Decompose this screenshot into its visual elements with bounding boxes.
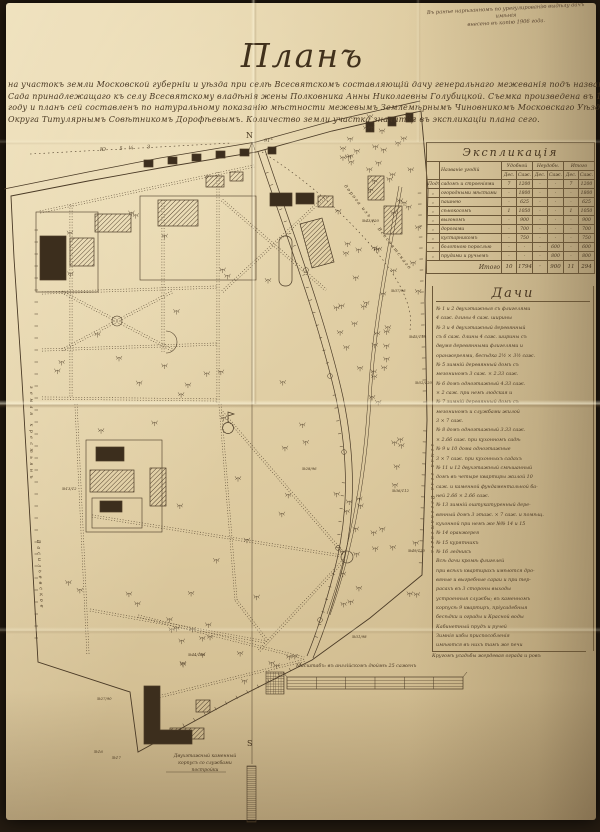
expl-value: · bbox=[533, 225, 548, 234]
tree-symbol bbox=[340, 146, 346, 151]
tree-symbol bbox=[224, 274, 230, 279]
park-alley bbox=[40, 165, 254, 211]
expl-value: 7 bbox=[564, 180, 579, 189]
expl-pre: „ bbox=[427, 207, 440, 216]
left-point-label: №13/12 bbox=[61, 486, 77, 491]
tree-symbol bbox=[59, 360, 65, 365]
expl-row: „прудами и ручьемъ···800·800 bbox=[427, 252, 595, 261]
tree-symbol bbox=[235, 476, 241, 481]
boundary-tick bbox=[279, 209, 282, 210]
tree-symbol bbox=[356, 248, 362, 253]
tree-symbol bbox=[348, 600, 354, 605]
park-alley bbox=[42, 288, 218, 294]
tree-symbol bbox=[384, 357, 390, 362]
expl-value: 1800 bbox=[517, 189, 533, 198]
boundary-tick bbox=[293, 245, 296, 246]
tree-symbol bbox=[213, 558, 219, 563]
buildings-register-line: Всѣ дачи кромѣ флигелей bbox=[436, 557, 590, 566]
expl-value: 700 bbox=[517, 225, 533, 234]
buildings-register-line: № 1 и 2 двухэтажныя съ флигелями bbox=[436, 305, 590, 314]
wooden-building bbox=[230, 172, 243, 181]
stone-building-caption-2: корпусъ со службами bbox=[178, 759, 232, 766]
tree-symbol bbox=[178, 392, 184, 397]
stream bbox=[327, 186, 399, 614]
tree-symbol bbox=[391, 268, 397, 273]
buildings-register-line: 3 × 7 саж. при кухонныхъ садахъ bbox=[436, 455, 590, 464]
scale-block bbox=[266, 672, 284, 694]
tree-symbol bbox=[116, 356, 122, 361]
expl-land-name: садомъ и строеніями bbox=[440, 180, 502, 189]
tree-symbol bbox=[54, 369, 60, 374]
tree-symbol bbox=[390, 545, 396, 550]
description-line: Округа Титулярнымъ Совѣтникомъ Дорофѣевы… bbox=[8, 114, 594, 126]
park-alley bbox=[92, 515, 342, 555]
buildings-register-line: имѣются въ нихъ тамъ же печи bbox=[436, 641, 590, 650]
tree-symbol bbox=[68, 272, 74, 277]
plan-description: на участокъ земли Московской губерніи и … bbox=[8, 79, 594, 125]
tree-symbol bbox=[381, 148, 387, 153]
expl-value: · bbox=[502, 243, 517, 252]
expl-value: · bbox=[564, 198, 579, 207]
tree-symbol bbox=[372, 144, 378, 149]
tree-symbol bbox=[366, 167, 372, 172]
expl-row: „кустарникомъ·750···750 bbox=[427, 234, 595, 243]
tree-symbol bbox=[398, 443, 404, 448]
tree-symbol bbox=[372, 546, 378, 551]
tree-symbol bbox=[381, 365, 387, 370]
tree-symbol bbox=[254, 595, 260, 600]
tree-symbol bbox=[415, 289, 421, 294]
tree-symbol bbox=[199, 636, 205, 641]
expl-value: · bbox=[533, 252, 548, 261]
expl-value: · bbox=[548, 207, 564, 216]
expl-value: · bbox=[502, 234, 517, 243]
park-alley bbox=[61, 293, 171, 351]
tree-symbol bbox=[303, 440, 309, 445]
expl-value: 1 bbox=[564, 207, 579, 216]
buildings-register-line: × 2.66 саж. при кухонномъ садѣ bbox=[436, 436, 590, 445]
expl-value: 1050 bbox=[517, 207, 533, 216]
park-alley bbox=[237, 599, 269, 641]
expl-value: 900 bbox=[517, 216, 533, 225]
stone-building bbox=[96, 447, 124, 461]
tree-symbol bbox=[220, 416, 226, 421]
tree-symbol bbox=[407, 592, 413, 597]
buildings-register-line: устроенныя службы; въ каменномъ bbox=[436, 595, 590, 604]
expl-pre: „ bbox=[427, 252, 440, 261]
tree-symbol bbox=[341, 602, 347, 607]
expl-sub-header: Саж. bbox=[517, 171, 533, 180]
tree-symbol bbox=[406, 205, 412, 210]
wooden-building bbox=[158, 200, 198, 226]
tree-symbol bbox=[286, 655, 292, 660]
expl-pre: „ bbox=[427, 198, 440, 207]
angle-label: 91° bbox=[264, 138, 273, 144]
plan-title: Планъ bbox=[215, 36, 390, 75]
buildings-register-line: № 8 домъ одноэтажный 3.33 саж. bbox=[436, 426, 590, 435]
stone-building-caption-3: постройки bbox=[191, 767, 218, 773]
wooden-building bbox=[318, 196, 333, 207]
park-alley bbox=[92, 517, 342, 557]
expl-value: · bbox=[564, 243, 579, 252]
tree-symbol bbox=[173, 309, 179, 314]
wooden-building bbox=[368, 176, 384, 200]
wooden-building bbox=[196, 700, 210, 712]
expl-value: 625 bbox=[517, 198, 533, 207]
tree-symbol bbox=[354, 149, 360, 154]
tree-symbol bbox=[371, 530, 377, 535]
tree-symbol bbox=[280, 380, 286, 385]
expl-value: 750 bbox=[579, 234, 595, 243]
tree-symbol bbox=[77, 588, 83, 593]
tree-symbol bbox=[384, 329, 390, 334]
tree-symbol bbox=[353, 276, 359, 281]
tree-symbol bbox=[354, 552, 360, 557]
buildings-register-line: расахъ въ 3 стороны выходы bbox=[436, 585, 590, 594]
tree-symbol bbox=[414, 592, 420, 597]
tree-symbol bbox=[376, 247, 382, 252]
survey-point-label: №45/118 bbox=[408, 334, 427, 339]
survey-point-label: №36/112 bbox=[391, 488, 410, 493]
scale-flick bbox=[283, 672, 467, 677]
expl-land-name: болотною порослью bbox=[440, 243, 502, 252]
wooden-building bbox=[206, 176, 224, 187]
tree-symbol bbox=[177, 504, 183, 509]
boundary-tick bbox=[315, 637, 318, 638]
buildings-register-line: № 16 ледникъ bbox=[436, 548, 590, 557]
expl-row: „пашнею·625···625 bbox=[427, 198, 595, 207]
tree-symbol bbox=[133, 213, 139, 218]
tree-symbol bbox=[345, 242, 351, 247]
park-alley bbox=[223, 411, 345, 553]
expl-sub-header: Дес. bbox=[502, 171, 517, 180]
tree-symbol bbox=[361, 304, 367, 309]
survey-point-label: №52/120 bbox=[414, 380, 433, 385]
park-alley bbox=[42, 399, 218, 401]
stone-building bbox=[168, 157, 177, 164]
expl-total-value: · bbox=[533, 261, 548, 274]
buildings-register-line: бесѣдки и ограды и Красной воды bbox=[436, 613, 590, 622]
park-alley bbox=[63, 291, 173, 349]
expl-value: 1800 bbox=[579, 189, 595, 198]
buildings-register-line: № 7 зимній деревянный домъ съ bbox=[436, 398, 590, 407]
tree-symbol bbox=[237, 651, 243, 656]
expl-land-name: дорогами bbox=[440, 225, 502, 234]
buildings-register-line: 3 × 7 саж. bbox=[436, 417, 590, 426]
expl-row: „огородными мѣстами·1800···1800 bbox=[427, 189, 595, 198]
buildings-register-line: домъ въ четыре квартиры жилой 10 bbox=[436, 473, 590, 482]
buildings-register-line: × 2 саж. при немъ людская и bbox=[436, 389, 590, 398]
expl-total-value: 11 bbox=[564, 261, 579, 274]
expl-group-header: Итого bbox=[564, 162, 595, 171]
tree-symbol bbox=[392, 440, 398, 445]
meridian-bar bbox=[247, 766, 256, 822]
expl-value: · bbox=[533, 243, 548, 252]
boundary-label-west-upper: земля крестьянъ bbox=[28, 386, 33, 482]
south-label: S bbox=[247, 739, 252, 748]
tree-symbol bbox=[337, 330, 343, 335]
buildings-register-footnote: Кругомъ усадьбы жердевая ограда и ровъ bbox=[432, 651, 586, 659]
buildings-register-line: саж. и каменной фундаментальной ба- bbox=[436, 483, 590, 492]
tree-symbol bbox=[136, 381, 142, 386]
expl-value: 625 bbox=[579, 198, 595, 207]
expl-value: · bbox=[502, 189, 517, 198]
stone-building bbox=[192, 154, 201, 161]
park-alley bbox=[235, 601, 267, 643]
buildings-register-line: № 15 курятникъ bbox=[436, 539, 590, 548]
wooden-building bbox=[95, 214, 131, 232]
buildings-register-line: Кабинетный прудъ и ручей bbox=[436, 623, 590, 632]
tree-symbol bbox=[244, 538, 250, 543]
wooden-building bbox=[384, 206, 402, 234]
expl-value: · bbox=[533, 189, 548, 198]
expl-sub-header: Саж. bbox=[548, 171, 564, 180]
survey-point-label: №37/96 bbox=[390, 288, 406, 293]
park-alley bbox=[40, 167, 254, 213]
tree-symbol bbox=[274, 663, 280, 668]
tree-symbol bbox=[340, 155, 346, 160]
expl-value: · bbox=[564, 225, 579, 234]
tree-symbol bbox=[299, 423, 305, 428]
expl-land-name: огородными мѣстами bbox=[440, 189, 502, 198]
buildings-register-line: мезониномъ 3 саж. × 2.33 саж. bbox=[436, 370, 590, 379]
tree-symbol bbox=[379, 527, 385, 532]
explication-title: Экспликація bbox=[426, 142, 595, 161]
tree-symbol bbox=[340, 549, 346, 554]
tree-symbol bbox=[161, 364, 167, 369]
expl-sub-header: Дес. bbox=[564, 171, 579, 180]
expl-value: 800 bbox=[579, 252, 595, 261]
buildings-register: Дачи № 1 и 2 двухэтажныя съ флигелями4 с… bbox=[432, 286, 594, 651]
description-line: на участокъ земли Московской губерніи и … bbox=[8, 79, 594, 91]
tree-symbol bbox=[279, 512, 285, 517]
expl-sub-header: Саж. bbox=[579, 171, 595, 180]
buildings-register-line: № 9 и 10 дома одноэтажные bbox=[436, 445, 590, 454]
tree-symbol bbox=[98, 428, 104, 433]
expl-value: 1050 bbox=[579, 207, 595, 216]
tree-symbol bbox=[179, 639, 185, 644]
expl-row: „выгономъ·900···900 bbox=[427, 216, 595, 225]
park-alley bbox=[61, 291, 171, 349]
expl-row: „дорогами·700···700 bbox=[427, 225, 595, 234]
tree-symbol bbox=[204, 371, 210, 376]
expl-land-name: выгономъ bbox=[440, 216, 502, 225]
tree-symbol bbox=[408, 167, 414, 172]
tree-symbol bbox=[380, 292, 386, 297]
expl-value: · bbox=[517, 252, 533, 261]
boundary-tick bbox=[309, 300, 312, 301]
hatched-structure bbox=[300, 218, 334, 268]
tree-symbol bbox=[357, 366, 363, 371]
park-alley bbox=[77, 404, 89, 655]
buildings-register-line: № 11 и 12 двухэтажный смѣшанный bbox=[436, 464, 590, 473]
stone-building bbox=[296, 193, 314, 204]
expl-land-name: пашнею bbox=[440, 198, 502, 207]
survey-point-label: №31/98 bbox=[351, 634, 367, 639]
park-alley bbox=[90, 609, 266, 641]
tree-symbol bbox=[94, 332, 100, 337]
tree-symbol bbox=[375, 400, 381, 405]
stone-building bbox=[270, 193, 292, 206]
scale-caption: Масштабъ: въ англійскомъ дюймѣ 25 саженъ bbox=[296, 664, 476, 669]
expl-total-value: 1794 bbox=[517, 261, 533, 274]
tree-symbol bbox=[383, 344, 389, 349]
tree-symbol bbox=[207, 635, 213, 640]
tree-symbol bbox=[241, 679, 247, 684]
park-alley bbox=[90, 611, 266, 643]
expl-row: „сѣнокосомъ11050··11050 bbox=[427, 207, 595, 216]
expl-pre: „ bbox=[427, 243, 440, 252]
boundary-tick bbox=[266, 172, 269, 173]
expl-value: · bbox=[564, 189, 579, 198]
tree-symbol bbox=[205, 623, 211, 628]
tree-symbol bbox=[292, 654, 298, 659]
tree-symbol bbox=[375, 161, 381, 166]
alley-junction-circle bbox=[112, 316, 122, 326]
boundary-tick bbox=[289, 668, 291, 671]
tree-symbol bbox=[387, 177, 393, 182]
buildings-register-line: вяные и выгребные сараи и при тер- bbox=[436, 576, 590, 585]
description-line: году и планъ сей составленъ по натуральн… bbox=[8, 102, 594, 114]
tree-symbol bbox=[152, 421, 158, 426]
tree-symbol bbox=[334, 492, 340, 497]
wooden-building bbox=[150, 468, 166, 506]
tree-symbol bbox=[218, 370, 224, 375]
expl-total-value: 10 bbox=[502, 261, 517, 274]
expl-value: 750 bbox=[517, 234, 533, 243]
buildings-register-line: кухонной при немъ же №№ 14 и 15 bbox=[436, 520, 590, 529]
garden-pavilion bbox=[223, 423, 234, 434]
tree-symbol bbox=[67, 231, 73, 236]
expl-name-header: Названіе угодій bbox=[440, 162, 502, 180]
tree-symbol bbox=[335, 209, 341, 214]
park-alley bbox=[75, 404, 87, 655]
buildings-register-title: Дачи bbox=[436, 286, 590, 302]
tree-symbol bbox=[126, 592, 132, 597]
tree-symbol bbox=[339, 304, 345, 309]
expl-value: 1200 bbox=[579, 180, 595, 189]
expl-value: 1 bbox=[502, 207, 517, 216]
bearing-label: Ю 5¼ З bbox=[99, 143, 157, 153]
expl-value: · bbox=[502, 216, 517, 225]
tree-symbol bbox=[135, 601, 141, 606]
boundary-tick bbox=[312, 312, 315, 313]
tree-symbol bbox=[65, 580, 71, 585]
expl-value: · bbox=[517, 243, 533, 252]
tree-symbol bbox=[265, 278, 271, 283]
expl-value: 800 bbox=[548, 252, 564, 261]
park-alley bbox=[138, 617, 304, 659]
tree-symbol bbox=[395, 141, 401, 146]
expl-pre: „ bbox=[427, 189, 440, 198]
boundary-tick bbox=[319, 337, 322, 338]
boundary-tick bbox=[322, 611, 325, 612]
tree-symbol bbox=[285, 493, 291, 498]
boundary-tick bbox=[306, 287, 309, 288]
stone-building bbox=[144, 160, 153, 167]
expl-group-header: Неудобн. bbox=[533, 162, 564, 171]
buildings-register-line: корпусѣ 9 квартиръ, пріусадебныя bbox=[436, 604, 590, 613]
boundary-label-west-lower: Васильевское bbox=[35, 539, 45, 611]
buildings-register-line: № 5 зимній деревянный домъ съ bbox=[436, 361, 590, 370]
wooden-building bbox=[90, 470, 134, 492]
stone-building bbox=[268, 147, 276, 154]
north-label: N bbox=[246, 131, 253, 140]
tree-symbol bbox=[185, 383, 191, 388]
tree-symbol bbox=[343, 345, 349, 350]
expl-value: · bbox=[564, 234, 579, 243]
buildings-register-line: съ 6 саж. длины 4 саж. ширины съ bbox=[436, 333, 590, 342]
tree-symbol bbox=[220, 268, 226, 273]
tree-symbol bbox=[394, 464, 400, 469]
park-alley bbox=[42, 397, 218, 399]
buildings-register-line: № 3 и 4 двухэтажный деревянный bbox=[436, 324, 590, 333]
tree-symbol bbox=[347, 137, 353, 142]
buildings-register-line: двумя деревянными флигелями и bbox=[436, 342, 590, 351]
wooden-building bbox=[70, 238, 94, 266]
tree-symbol bbox=[166, 617, 172, 622]
stone-building bbox=[100, 501, 122, 512]
expl-value: · bbox=[564, 216, 579, 225]
survey-point-label: №28/96 bbox=[301, 466, 317, 471]
expl-land-name: прудами и ручьемъ bbox=[440, 252, 502, 261]
expl-value: · bbox=[533, 180, 548, 189]
expl-value: · bbox=[502, 225, 517, 234]
expl-corner bbox=[427, 162, 440, 180]
expl-pre: Подъ bbox=[427, 180, 440, 189]
survey-point-label: №27/90 bbox=[96, 696, 112, 701]
boundary-tick bbox=[302, 275, 305, 276]
tree-symbol bbox=[356, 586, 362, 591]
park-alley bbox=[42, 286, 218, 292]
tree-symbol bbox=[371, 369, 377, 374]
pond bbox=[279, 236, 292, 286]
tree-symbol bbox=[188, 591, 194, 596]
expl-value: · bbox=[533, 207, 548, 216]
stone-building bbox=[240, 149, 249, 156]
small-building-label-16: №16 bbox=[93, 749, 103, 754]
expl-total-value: 900 bbox=[548, 261, 564, 274]
stone-building-caption-1: Двухэтажный каменный bbox=[173, 753, 237, 759]
survey-point-label: №44/116 bbox=[187, 652, 206, 657]
expl-sub-header: Дес. bbox=[533, 171, 548, 180]
expl-value: 900 bbox=[579, 216, 595, 225]
tree-symbol bbox=[343, 251, 349, 256]
expl-value: · bbox=[533, 198, 548, 207]
expl-total-value: 294 bbox=[579, 261, 595, 274]
expl-value: · bbox=[502, 198, 517, 207]
tree-symbol bbox=[385, 325, 391, 330]
tree-symbol bbox=[346, 500, 352, 505]
expl-value: · bbox=[564, 252, 579, 261]
tree-symbol bbox=[374, 331, 380, 336]
expl-row: Подъсадомъ и строеніями71200··71200 bbox=[427, 180, 595, 189]
expl-value: · bbox=[533, 216, 548, 225]
expl-pre: „ bbox=[427, 234, 440, 243]
buildings-register-lines: № 1 и 2 двухэтажныя съ флигелями4 саж. д… bbox=[436, 305, 590, 651]
tree-symbol bbox=[413, 541, 419, 546]
buildings-register-line: оранжереями, бесѣдка 2½ × 3½ саж. bbox=[436, 352, 590, 361]
semicircular-alley bbox=[166, 331, 177, 353]
boundary-tick bbox=[284, 221, 287, 222]
stone-building bbox=[216, 151, 225, 158]
expl-value: 600 bbox=[548, 243, 564, 252]
pavilion-flag bbox=[228, 412, 234, 422]
expl-value: 700 bbox=[579, 225, 595, 234]
expl-value: · bbox=[548, 189, 564, 198]
buildings-register-line: ней 2.66 × 2.66 саж. bbox=[436, 492, 590, 501]
expl-pre: „ bbox=[427, 216, 440, 225]
